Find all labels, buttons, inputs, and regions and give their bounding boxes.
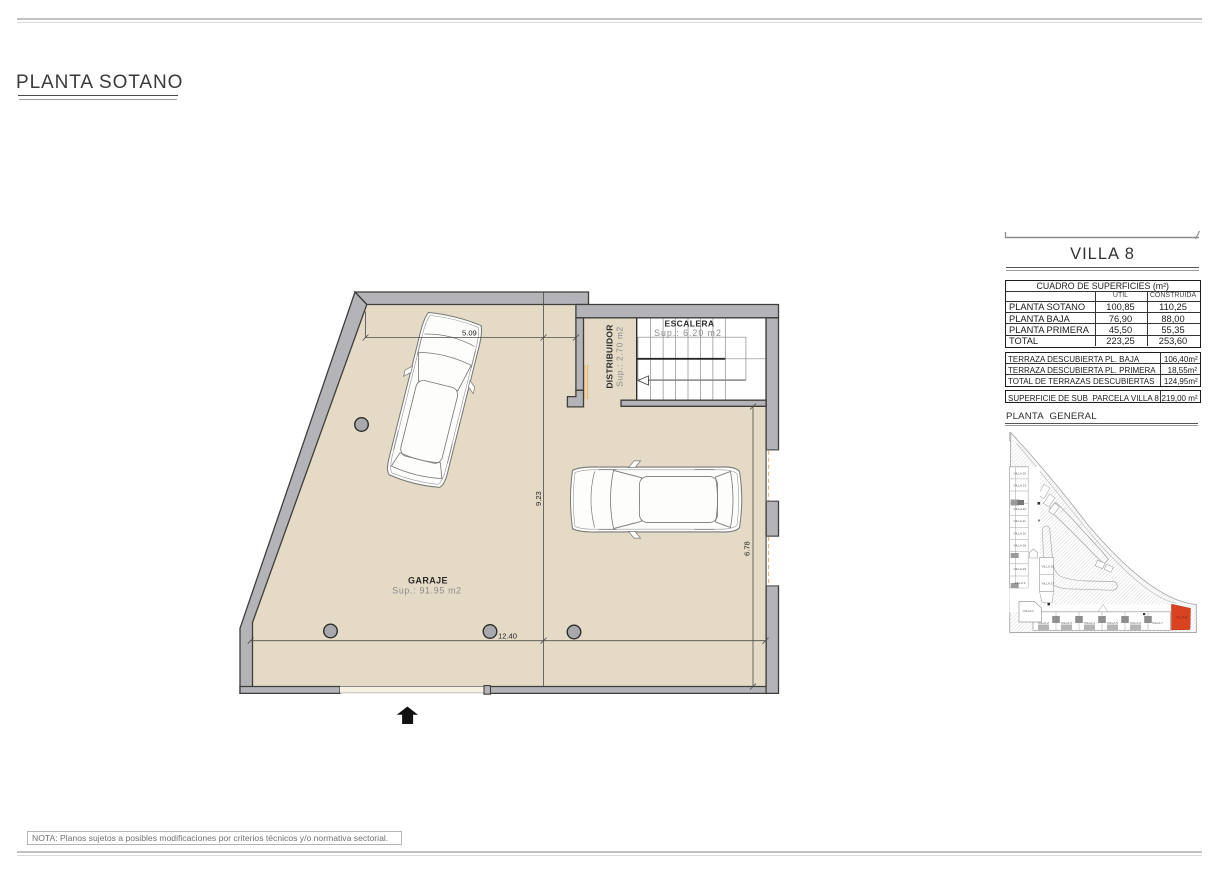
svg-text:Sup.: 2.70 m2: Sup.: 2.70 m2 bbox=[615, 326, 625, 387]
svg-text:VILLA 4: VILLA 4 bbox=[1084, 621, 1095, 625]
svg-text:ESCALERA: ESCALERA bbox=[665, 319, 715, 329]
svg-text:VILLA 9: VILLA 9 bbox=[1015, 581, 1026, 585]
svg-text:VILLA 15: VILLA 15 bbox=[1014, 472, 1027, 476]
svg-text:VILLA 12: VILLA 12 bbox=[1014, 507, 1027, 511]
svg-text:VILLA 19: VILLA 19 bbox=[1014, 567, 1027, 571]
svg-text:DISTRIBUIDOR: DISTRIBUIDOR bbox=[605, 324, 615, 388]
svg-text:Sup.: 91.95 m2: Sup.: 91.95 m2 bbox=[392, 586, 461, 596]
svg-text:VILLA 6: VILLA 6 bbox=[1130, 621, 1141, 625]
svg-text:12.40: 12.40 bbox=[498, 632, 517, 641]
svg-text:VILLA 7: VILLA 7 bbox=[1152, 621, 1163, 625]
svg-text:VILLA 10: VILLA 10 bbox=[1014, 531, 1027, 535]
svg-text:6.78: 6.78 bbox=[743, 541, 752, 556]
svg-text:VILLA 27: VILLA 27 bbox=[1042, 582, 1055, 586]
svg-text:VILLA 5: VILLA 5 bbox=[1107, 621, 1118, 625]
svg-text:VILLA 8: VILLA 8 bbox=[1176, 616, 1187, 620]
svg-text:5.09: 5.09 bbox=[462, 328, 477, 337]
svg-text:VILLA 26: VILLA 26 bbox=[1042, 565, 1055, 569]
svg-text:VILLA 2: VILLA 2 bbox=[1038, 621, 1049, 625]
svg-text:VILLA 13: VILLA 13 bbox=[1014, 484, 1027, 488]
svg-text:VILLA 11: VILLA 11 bbox=[1014, 519, 1027, 523]
svg-text:GARAJE: GARAJE bbox=[408, 576, 448, 586]
svg-text:Sup.: 6.20 m2: Sup.: 6.20 m2 bbox=[654, 328, 722, 338]
svg-text:VILLA 1: VILLA 1 bbox=[1023, 609, 1034, 613]
svg-text:9.23: 9.23 bbox=[534, 491, 543, 506]
svg-text:VILLA 18: VILLA 18 bbox=[1014, 543, 1027, 547]
svg-text:VILLA 3: VILLA 3 bbox=[1061, 621, 1072, 625]
